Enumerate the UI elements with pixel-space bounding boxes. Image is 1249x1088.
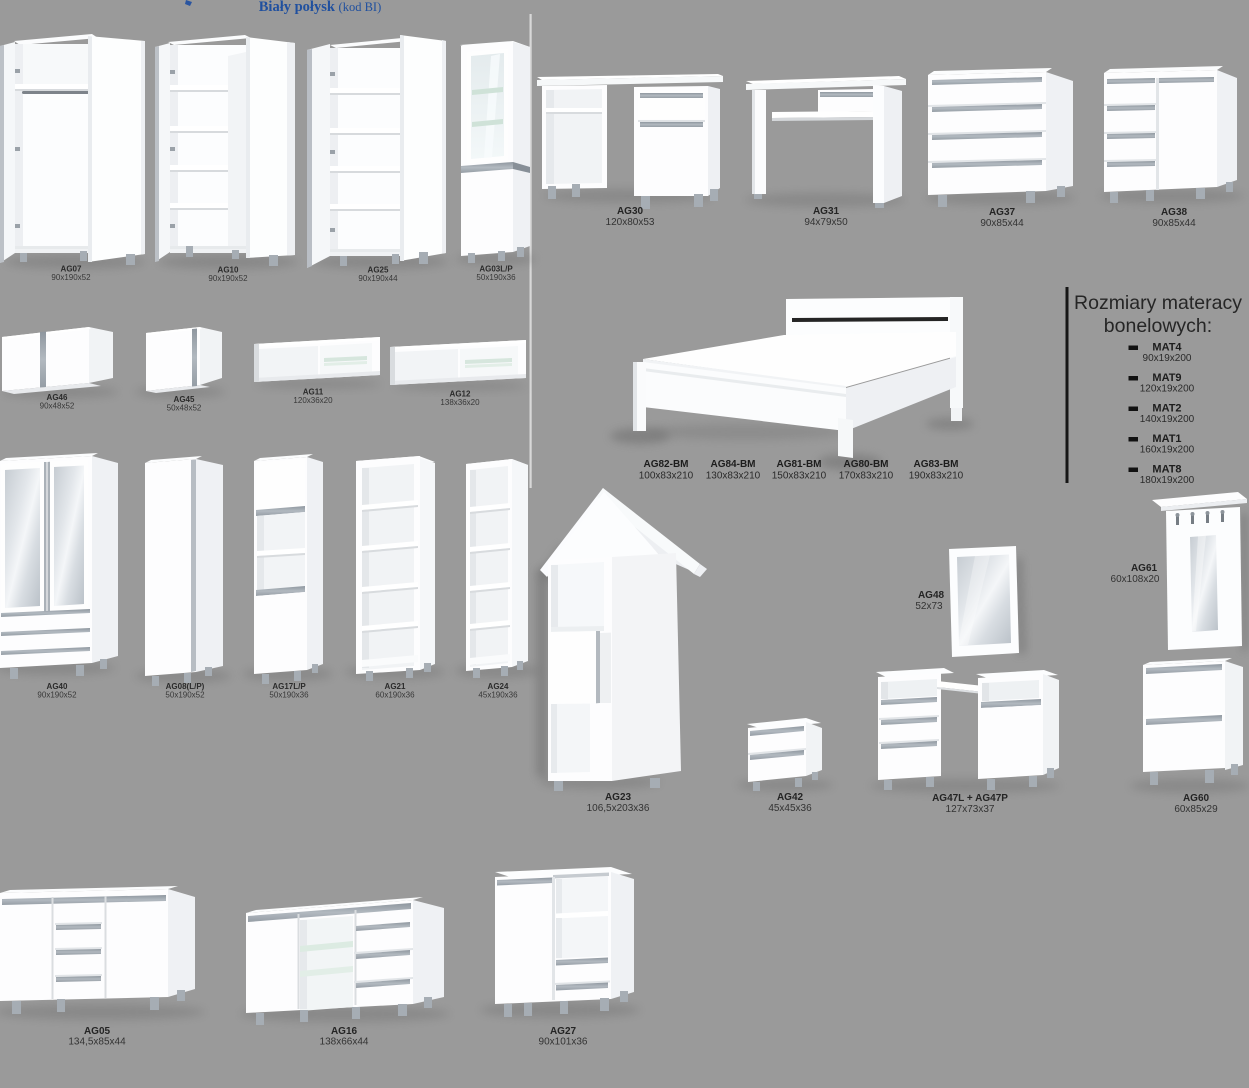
svg-text:150x83x210: 150x83x210 bbox=[772, 471, 827, 482]
svg-text:Biały połysk (kod BI): Biały połysk (kod BI) bbox=[259, 0, 381, 15]
svg-text:bonelowych:: bonelowych: bbox=[1104, 315, 1212, 337]
svg-text:AG48: AG48 bbox=[918, 590, 945, 601]
svg-text:MAT2: MAT2 bbox=[1152, 403, 1181, 415]
svg-text:AG82-BM: AG82-BM bbox=[643, 459, 688, 470]
svg-text:140x19x200: 140x19x200 bbox=[1140, 414, 1195, 425]
svg-text:52x73: 52x73 bbox=[915, 601, 943, 612]
svg-text:90x190x52: 90x190x52 bbox=[208, 274, 248, 283]
svg-text:160x19x200: 160x19x200 bbox=[1140, 445, 1195, 456]
svg-text:90x101x36: 90x101x36 bbox=[539, 1037, 588, 1048]
svg-text:180x19x200: 180x19x200 bbox=[1140, 475, 1195, 486]
svg-text:134,5x85x44: 134,5x85x44 bbox=[68, 1037, 126, 1048]
svg-text:AG42: AG42 bbox=[777, 792, 804, 803]
svg-text:106,5x203x36: 106,5x203x36 bbox=[587, 803, 650, 814]
svg-text:AG16: AG16 bbox=[331, 1026, 358, 1037]
svg-text:127x73x37: 127x73x37 bbox=[946, 804, 995, 815]
svg-text:AG23: AG23 bbox=[605, 792, 632, 803]
svg-text:120x19x200: 120x19x200 bbox=[1140, 384, 1195, 395]
svg-text:138x66x44: 138x66x44 bbox=[320, 1037, 369, 1048]
svg-text:MAT1: MAT1 bbox=[1152, 433, 1181, 445]
svg-text:AG83-BM: AG83-BM bbox=[913, 459, 958, 470]
svg-text:170x83x210: 170x83x210 bbox=[839, 471, 894, 482]
svg-text:120x80x53: 120x80x53 bbox=[606, 217, 655, 228]
svg-text:90x85x44: 90x85x44 bbox=[980, 218, 1024, 229]
svg-text:AG38: AG38 bbox=[1161, 207, 1188, 218]
svg-text:50x190x36: 50x190x36 bbox=[476, 273, 516, 282]
svg-text:138x36x20: 138x36x20 bbox=[440, 398, 480, 407]
svg-text:90x48x52: 90x48x52 bbox=[40, 402, 75, 411]
svg-text:AG60: AG60 bbox=[1183, 793, 1210, 804]
svg-text:60x108x20: 60x108x20 bbox=[1111, 574, 1160, 585]
svg-text:AG84-BM: AG84-BM bbox=[710, 459, 755, 470]
svg-text:50x190x36: 50x190x36 bbox=[269, 691, 309, 700]
svg-text:50x190x52: 50x190x52 bbox=[165, 691, 205, 700]
svg-text:Rozmiary materacy: Rozmiary materacy bbox=[1074, 292, 1242, 314]
svg-text:90x85x44: 90x85x44 bbox=[1152, 218, 1196, 229]
svg-text:100x83x210: 100x83x210 bbox=[639, 471, 694, 482]
svg-text:45x45x36: 45x45x36 bbox=[768, 803, 812, 814]
svg-text:MAT4: MAT4 bbox=[1152, 342, 1182, 354]
svg-text:AG80-BM: AG80-BM bbox=[843, 459, 888, 470]
svg-text:94x79x50: 94x79x50 bbox=[804, 217, 848, 228]
svg-text:45x190x36: 45x190x36 bbox=[478, 691, 518, 700]
svg-text:90x19x200: 90x19x200 bbox=[1143, 353, 1192, 364]
svg-text:AG61: AG61 bbox=[1131, 563, 1158, 574]
svg-text:AG47L + AG47P: AG47L + AG47P bbox=[932, 793, 1008, 804]
svg-text:60x190x36: 60x190x36 bbox=[375, 691, 415, 700]
svg-text:130x83x210: 130x83x210 bbox=[706, 471, 761, 482]
svg-text:AG30: AG30 bbox=[617, 206, 644, 217]
svg-text:AG37: AG37 bbox=[989, 207, 1016, 218]
svg-text:120x36x20: 120x36x20 bbox=[293, 396, 333, 405]
svg-text:60x85x29: 60x85x29 bbox=[1174, 804, 1218, 815]
svg-text:190x83x210: 190x83x210 bbox=[909, 471, 964, 482]
svg-text:90x190x52: 90x190x52 bbox=[51, 273, 91, 282]
svg-text:MAT9: MAT9 bbox=[1152, 372, 1181, 384]
svg-text:AG31: AG31 bbox=[813, 206, 840, 217]
svg-text:AG27: AG27 bbox=[550, 1026, 577, 1037]
svg-text:50x48x52: 50x48x52 bbox=[167, 404, 202, 413]
svg-text:90x190x52: 90x190x52 bbox=[37, 691, 77, 700]
svg-text:AG05: AG05 bbox=[84, 1026, 111, 1037]
svg-text:90x190x44: 90x190x44 bbox=[358, 274, 398, 283]
svg-text:AG81-BM: AG81-BM bbox=[776, 459, 821, 470]
svg-text:MAT8: MAT8 bbox=[1152, 464, 1181, 476]
